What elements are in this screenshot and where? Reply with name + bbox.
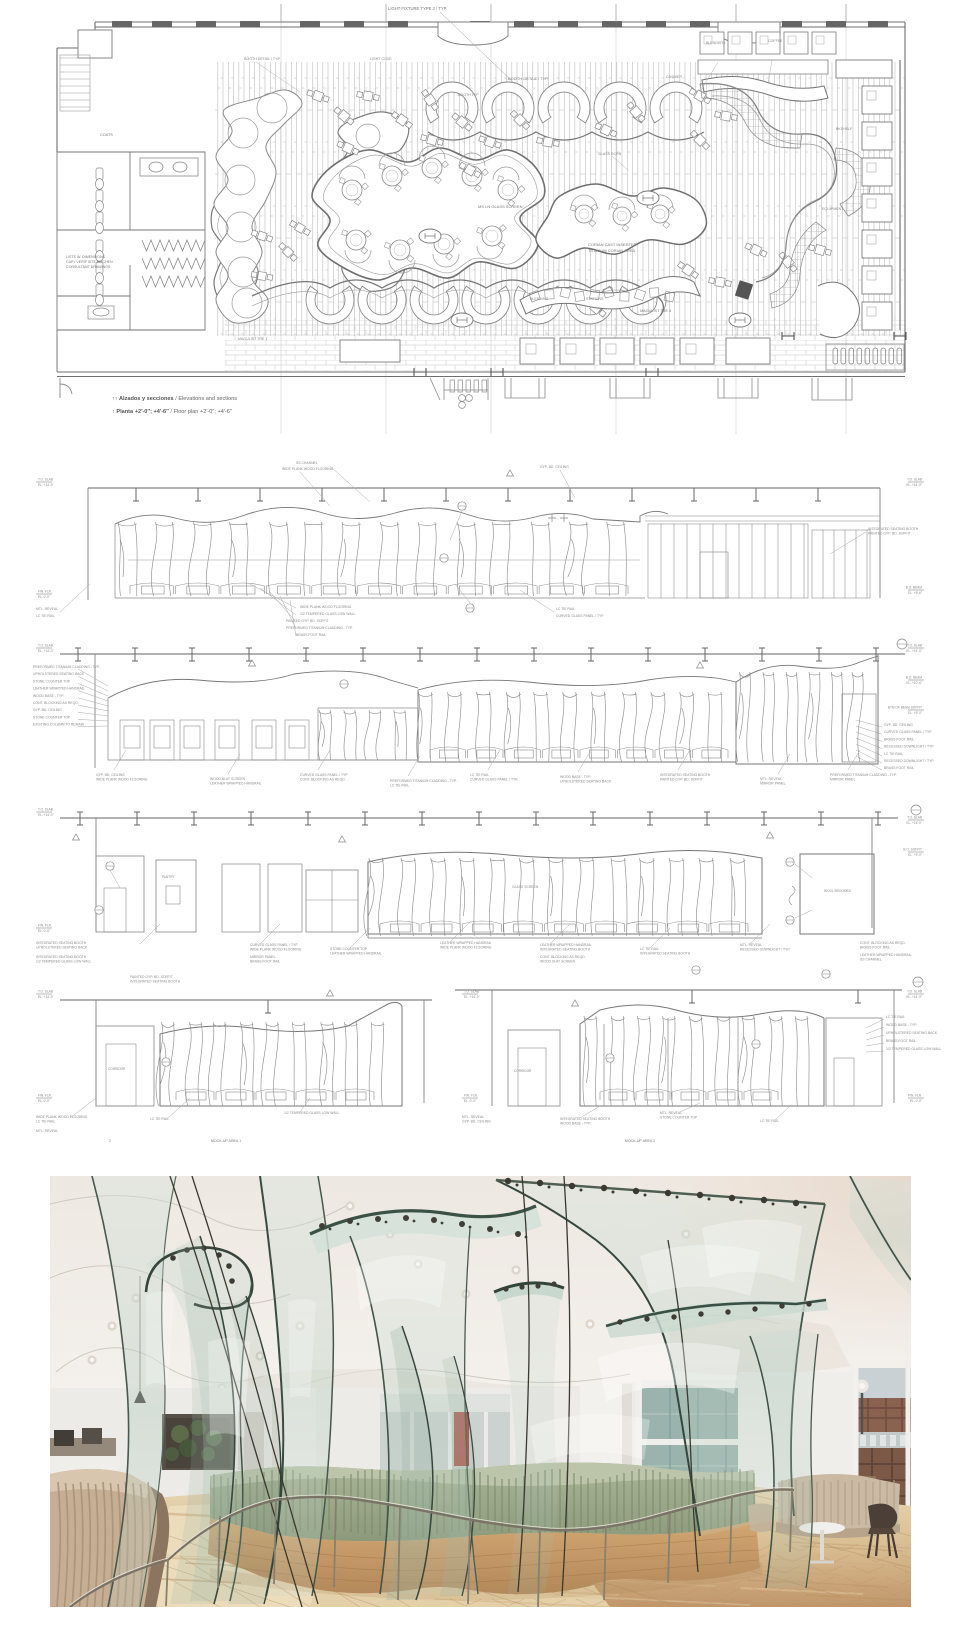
svg-text:EL. +9'-6": EL. +9'-6" xyxy=(908,591,922,595)
svg-text:BRASS FOOT RAIL: BRASS FOOT RAIL xyxy=(884,737,914,741)
svg-text:WIDE PLANK WOOD FLOORING: WIDE PLANK WOOD FLOORING xyxy=(250,948,302,952)
svg-text:1/2 TEMPERED GLASS LOW WALL: 1/2 TEMPERED GLASS LOW WALL xyxy=(36,960,92,964)
svg-text:BOOTH DETAIL / TYP: BOOTH DETAIL / TYP xyxy=(244,57,280,61)
svg-text:INTEGRATED SEATING BOOTH: INTEGRATED SEATING BOOTH xyxy=(540,948,591,952)
svg-text:CURVED GLASS PANEL / TYP.: CURVED GLASS PANEL / TYP. xyxy=(250,943,298,947)
svg-text:EL. 0'-0": EL. 0'-0" xyxy=(38,1099,50,1103)
svg-text:LC TIE RAIL: LC TIE RAIL xyxy=(390,784,409,788)
svg-text:EL. +14'-0": EL. +14'-0" xyxy=(906,483,922,487)
svg-text:CORIAN CAST INSERTED: CORIAN CAST INSERTED xyxy=(588,242,637,247)
svg-text:MAGULIST TRE 1: MAGULIST TRE 1 xyxy=(238,337,267,341)
svg-text:FIN. FLR.: FIN. FLR. xyxy=(38,590,52,594)
svg-text:EL. 0'-0": EL. 0'-0" xyxy=(38,595,50,599)
svg-text:EL. +14'-0": EL. +14'-0" xyxy=(38,813,54,817)
svg-text:SS CHANNEL: SS CHANNEL xyxy=(860,958,882,962)
svg-text:BOOTH TYP: BOOTH TYP xyxy=(458,93,479,97)
svg-text:LC TIE RAIL: LC TIE RAIL xyxy=(884,752,903,756)
svg-text:T.O. SLAB: T.O. SLAB xyxy=(38,808,53,812)
svg-text:CURVED GLASS PANEL / TYP.: CURVED GLASS PANEL / TYP. xyxy=(300,773,348,777)
svg-text:BRASS FOOT RAIL: BRASS FOOT RAIL xyxy=(250,960,280,964)
svg-text:EL. +14'-0": EL. +14'-0" xyxy=(906,821,922,825)
svg-text:B.O. BEAM: B.O. BEAM xyxy=(906,586,923,590)
svg-text:CONT. BLOCKING AS REQD.: CONT. BLOCKING AS REQD. xyxy=(33,701,79,705)
svg-text:CASHIER: CASHIER xyxy=(666,75,682,79)
svg-text:CURVED GLASS PANEL / TYP.: CURVED GLASS PANEL / TYP. xyxy=(556,614,604,618)
svg-text:LC TIE RAIL: LC TIE RAIL xyxy=(556,607,575,611)
svg-text:INTEGRATED SEATING BOOTH: INTEGRATED SEATING BOOTH xyxy=(640,952,691,956)
svg-text:LEATHER WRAPPED HANDRAIL: LEATHER WRAPPED HANDRAIL xyxy=(860,953,912,957)
svg-text:GLASS SCREEN: GLASS SCREEN xyxy=(512,885,539,889)
svg-text:MIRROR PANEL: MIRROR PANEL xyxy=(250,955,276,959)
svg-text:BRASS FOOT RAIL: BRASS FOOT RAIL xyxy=(296,633,326,637)
svg-text:UPHOLSTERED SEATING BACK: UPHOLSTERED SEATING BACK xyxy=(886,1031,938,1035)
svg-text:UPHOLSTERED SEATING BACK: UPHOLSTERED SEATING BACK xyxy=(560,780,612,784)
svg-text:BLENDERS: BLENDERS xyxy=(706,41,726,45)
svg-text:BRASS FOOT RAIL: BRASS FOOT RAIL xyxy=(860,946,890,950)
svg-text:GYP. BD. CEILING: GYP. BD. CEILING xyxy=(33,708,62,712)
svg-text:BRASS FOOT RAIL: BRASS FOOT RAIL xyxy=(884,766,914,770)
svg-text:INTEGRATED SEATING BOOTH: INTEGRATED SEATING BOOTH xyxy=(660,773,711,777)
svg-text:MOCK-UP AREA 2: MOCK-UP AREA 2 xyxy=(625,1139,655,1143)
svg-text:STATIONS: STATIONS xyxy=(586,297,604,301)
svg-text:LIGHT COVE: LIGHT COVE xyxy=(370,57,392,61)
svg-text:INTEGRATED SEATING BOOTH: INTEGRATED SEATING BOOTH xyxy=(868,527,919,531)
svg-text:LEATHER WRAPPED HANDRAIL: LEATHER WRAPPED HANDRAIL xyxy=(210,782,262,786)
svg-text:BKSHELF: BKSHELF xyxy=(836,127,853,131)
svg-text:↑↑ Alzados y secciones / Eleva: ↑↑ Alzados y secciones / Elevations and … xyxy=(112,396,237,402)
svg-text:EL. +14'-0": EL. +14'-0" xyxy=(906,649,922,653)
svg-text:GYP. BD. CEILING: GYP. BD. CEILING xyxy=(540,465,569,469)
svg-text:EXISTING COLUMN TO REMAIN: EXISTING COLUMN TO REMAIN xyxy=(33,723,85,727)
svg-text:STONE COUNTER TOP: STONE COUNTER TOP xyxy=(330,947,368,951)
svg-text:GYP. BD. CEILING: GYP. BD. CEILING xyxy=(462,1120,491,1124)
svg-text:WIDE PLANK WOOD FLOORING: WIDE PLANK WOOD FLOORING xyxy=(36,1115,88,1119)
svg-text:CURVED GLASS PANEL / TYP.: CURVED GLASS PANEL / TYP. xyxy=(470,778,518,782)
svg-text:T.O. SLAB: T.O. SLAB xyxy=(38,644,53,648)
svg-text:B.O. BEAM: B.O. BEAM xyxy=(906,676,923,680)
svg-text:EL. +14'-0": EL. +14'-0" xyxy=(464,995,480,999)
svg-text:WOOD BASE - TYP.: WOOD BASE - TYP. xyxy=(560,1122,591,1126)
svg-text:LC TIE RAIL: LC TIE RAIL xyxy=(470,773,489,777)
svg-text:RECESSED DOWNLIGHT / TYP.: RECESSED DOWNLIGHT / TYP. xyxy=(884,745,934,749)
svg-text:SS CHANNEL: SS CHANNEL xyxy=(296,461,318,465)
svg-text:T.O. SLAB: T.O. SLAB xyxy=(464,990,479,994)
svg-text:CAP / VERIF SITE KITCHEN: CAP / VERIF SITE KITCHEN xyxy=(66,260,113,264)
svg-text:WIDE PLANK WOOD FLOORING: WIDE PLANK WOOD FLOORING xyxy=(300,605,352,609)
svg-text:LC TIE RAIL: LC TIE RAIL xyxy=(150,1117,169,1121)
svg-text:LC TIE RAIL: LC TIE RAIL xyxy=(640,947,659,951)
svg-text:EL. +14'-0": EL. +14'-0" xyxy=(38,483,54,487)
svg-text:1/2 TEMPERED GLASS LOW WALL: 1/2 TEMPERED GLASS LOW WALL xyxy=(284,1111,340,1115)
svg-text:WIDE PLANK WOOD FLOORING: WIDE PLANK WOOD FLOORING xyxy=(440,946,492,950)
svg-text:LC TIE RAIL: LC TIE RAIL xyxy=(886,1015,905,1019)
svg-text:T.O. SLAB: T.O. SLAB xyxy=(38,990,53,994)
svg-text:GLASS SCRN: GLASS SCRN xyxy=(598,152,622,156)
svg-text:PAINTED GYP. BD. SOFFIT: PAINTED GYP. BD. SOFFIT xyxy=(660,778,703,782)
svg-text:CONT. BLOCKING AS REQD.: CONT. BLOCKING AS REQD. xyxy=(860,941,906,945)
svg-text:INTEGRATED SEATING BOOTH: INTEGRATED SEATING BOOTH xyxy=(36,941,87,945)
svg-text:FIN. FLR.: FIN. FLR. xyxy=(908,1094,922,1098)
svg-text:LC TIE RAIL: LC TIE RAIL xyxy=(36,1120,55,1124)
svg-text:WOOD SLAT SCREEN: WOOD SLAT SCREEN xyxy=(210,777,246,781)
svg-text:LC TIE RAIL: LC TIE RAIL xyxy=(760,1119,779,1123)
svg-text:MTL. REVEAL: MTL. REVEAL xyxy=(660,1111,682,1115)
svg-text:PAINTED GYP. BD. SOFFIT: PAINTED GYP. BD. SOFFIT xyxy=(868,532,911,536)
svg-text:MAGULIST TRE 4: MAGULIST TRE 4 xyxy=(640,309,671,313)
svg-text:INTEGRATED SEATING BOOTH: INTEGRATED SEATING BOOTH xyxy=(560,1117,611,1121)
svg-text:WOOD SLAT SCREEN: WOOD SLAT SCREEN xyxy=(540,960,576,964)
svg-text:CONT. BLOCKING AS REQD.: CONT. BLOCKING AS REQD. xyxy=(540,955,586,959)
svg-text:UPHOLSTERED SEATING BACK: UPHOLSTERED SEATING BACK xyxy=(33,672,85,676)
svg-text:INTEGRATED SEATING BOOTH: INTEGRATED SEATING BOOTH xyxy=(36,955,87,959)
svg-text:EL. +14'-0": EL. +14'-0" xyxy=(38,649,54,653)
svg-text:STONE COUNTER TOP: STONE COUNTER TOP xyxy=(33,715,71,719)
svg-text:EL. 0'-0": EL. 0'-0" xyxy=(38,929,50,933)
svg-text:BTM OF BEAM SOFFIT: BTM OF BEAM SOFFIT xyxy=(888,706,922,710)
svg-text:WOOD BASE - TYP.: WOOD BASE - TYP. xyxy=(560,775,591,779)
svg-text:WIDE PLANK WOOD FLOORING: WIDE PLANK WOOD FLOORING xyxy=(96,778,148,782)
svg-text:T.O. SLAB: T.O. SLAB xyxy=(907,478,922,482)
svg-text:GYP. BD. CEILING: GYP. BD. CEILING xyxy=(884,723,913,727)
svg-text:UPHOLSTERED SEATING BACK: UPHOLSTERED SEATING BACK xyxy=(36,946,88,950)
svg-text:COFFEE: COFFEE xyxy=(768,39,783,43)
svg-text:EL. +10'-6": EL. +10'-6" xyxy=(906,681,922,685)
svg-text:2: 2 xyxy=(109,1139,111,1143)
svg-text:LIGHT FIXTURE TYPE 2 / TYP.: LIGHT FIXTURE TYPE 2 / TYP. xyxy=(388,6,447,11)
svg-text:T.O. SLAB: T.O. SLAB xyxy=(907,816,922,820)
svg-text:BOOTH DETAIL / TYP.: BOOTH DETAIL / TYP. xyxy=(508,76,549,81)
svg-text:PREFORMED TITANIUM CLADDING -: PREFORMED TITANIUM CLADDING - TYP. xyxy=(390,779,457,783)
svg-text:PREFORMED TITANIUM CLADDING -: PREFORMED TITANIUM CLADDING - TYP. xyxy=(33,665,100,669)
svg-text:RECESSED DOWNLIGHT / TYP.: RECESSED DOWNLIGHT / TYP. xyxy=(740,948,790,952)
svg-text:FIN. FLR.: FIN. FLR. xyxy=(38,924,52,928)
svg-text:EL. 0'-0": EL. 0'-0" xyxy=(910,1099,922,1103)
svg-text:EL. +9'-0": EL. +9'-0" xyxy=(908,853,922,857)
svg-text:STONE COUNTER TOP: STONE COUNTER TOP xyxy=(33,679,71,683)
svg-text:WOOD BASE - TYP.: WOOD BASE - TYP. xyxy=(33,694,64,698)
svg-text:CORRIDOR: CORRIDOR xyxy=(514,1069,532,1073)
svg-text:BRASS FOOT RAIL: BRASS FOOT RAIL xyxy=(886,1039,916,1043)
svg-text:EQUIPMENT: EQUIPMENT xyxy=(822,207,844,211)
svg-text:CONSULTANT DRAWINGS: CONSULTANT DRAWINGS xyxy=(66,265,111,269)
svg-text:1/2 TEMPERED GLASS LOW WALL: 1/2 TEMPERED GLASS LOW WALL xyxy=(886,1047,942,1051)
svg-text:FIN. FLR.: FIN. FLR. xyxy=(464,1094,478,1098)
svg-text:MTL. REVEAL: MTL. REVEAL xyxy=(36,607,58,611)
svg-text:MOCK-UP AREA 1: MOCK-UP AREA 1 xyxy=(211,1139,241,1143)
svg-text:CONT. BLOCKING AS REQD.: CONT. BLOCKING AS REQD. xyxy=(300,778,346,782)
svg-text:WIDE PLANK WOOD FLOORING: WIDE PLANK WOOD FLOORING xyxy=(282,467,334,471)
svg-text:FIN. FLR.: FIN. FLR. xyxy=(38,1094,52,1098)
svg-text:CURVED GLASS PANEL / TYP.: CURVED GLASS PANEL / TYP. xyxy=(884,730,932,734)
svg-text:MTL. REVEAL: MTL. REVEAL xyxy=(36,1129,58,1133)
svg-text:1/2 TEMPERED GLASS LOW WALL: 1/2 TEMPERED GLASS LOW WALL xyxy=(300,612,356,616)
svg-text:↑ Planta +2′-0″; +4′-6″ / Flo: ↑ Planta +2′-0″; +4′-6″ / Floor plan +2′… xyxy=(112,409,232,415)
svg-text:EL. +14'-0": EL. +14'-0" xyxy=(38,995,54,999)
svg-text:PANTRY: PANTRY xyxy=(162,875,176,879)
svg-text:MTL. REVEAL: MTL. REVEAL xyxy=(760,777,782,781)
svg-text:GYP. BD. CEILING: GYP. BD. CEILING xyxy=(96,773,125,777)
svg-text:LEATHER WRAPPED HANDRAIL: LEATHER WRAPPED HANDRAIL xyxy=(33,687,85,691)
svg-text:WOOD BASE - TYP.: WOOD BASE - TYP. xyxy=(886,1023,917,1027)
svg-text:PREFORMED TITANIUM CLADDING -: PREFORMED TITANIUM CLADDING - TYP. xyxy=(286,626,353,630)
svg-text:MIRROR PANEL: MIRROR PANEL xyxy=(830,778,856,782)
svg-text:MS LN GLASS SCREEN: MS LN GLASS SCREEN xyxy=(478,204,523,209)
svg-text:BLENDING: BLENDING xyxy=(530,297,549,301)
svg-text:WOOL BROOMED: WOOL BROOMED xyxy=(824,889,852,893)
svg-text:T.O. SLAB: T.O. SLAB xyxy=(907,990,922,994)
svg-text:TITANIUM CORIAN AREA: TITANIUM CORIAN AREA xyxy=(588,248,635,253)
svg-text:T.O. SLAB: T.O. SLAB xyxy=(907,644,922,648)
svg-text:LC TIE RAIL: LC TIE RAIL xyxy=(36,614,55,618)
svg-text:EL. +14'-0": EL. +14'-0" xyxy=(906,995,922,999)
svg-text:B.O. SOFFIT: B.O. SOFFIT xyxy=(903,848,922,852)
svg-text:CORRIDOR: CORRIDOR xyxy=(108,1067,126,1071)
svg-text:EL. 0'-0": EL. 0'-0" xyxy=(464,1099,476,1103)
svg-text:T.O. SLAB: T.O. SLAB xyxy=(38,478,53,482)
svg-text:PREFORMED TITANIUM CLADDING -: PREFORMED TITANIUM CLADDING - TYP. xyxy=(830,773,897,777)
svg-text:LEATHER WRAPPED HANDRAIL: LEATHER WRAPPED HANDRAIL xyxy=(540,943,592,947)
svg-text:PAINTED GYP. BD. SOFFIT: PAINTED GYP. BD. SOFFIT xyxy=(130,975,173,979)
svg-text:MTL. REVEAL: MTL. REVEAL xyxy=(740,943,762,947)
svg-text:LEATHER WRAPPED HANDRAIL: LEATHER WRAPPED HANDRAIL xyxy=(330,952,382,956)
svg-text:LISTE W. DIMENSIONS: LISTE W. DIMENSIONS xyxy=(66,255,106,259)
svg-text:COATS: COATS xyxy=(100,133,113,137)
svg-text:MIRROR PANEL: MIRROR PANEL xyxy=(760,782,786,786)
svg-text:EL. +9'-0": EL. +9'-0" xyxy=(908,711,922,715)
svg-text:MTL. REVEAL: MTL. REVEAL xyxy=(462,1115,484,1119)
svg-text:RECESSED DOWNLIGHT / TYP.: RECESSED DOWNLIGHT / TYP. xyxy=(884,759,934,763)
svg-text:INTEGRATED SEATING BOOTH: INTEGRATED SEATING BOOTH xyxy=(130,980,181,984)
svg-text:STONE COUNTER TOP: STONE COUNTER TOP xyxy=(660,1116,698,1120)
svg-text:LEATHER WRAPPED HANDRAIL: LEATHER WRAPPED HANDRAIL xyxy=(440,941,492,945)
